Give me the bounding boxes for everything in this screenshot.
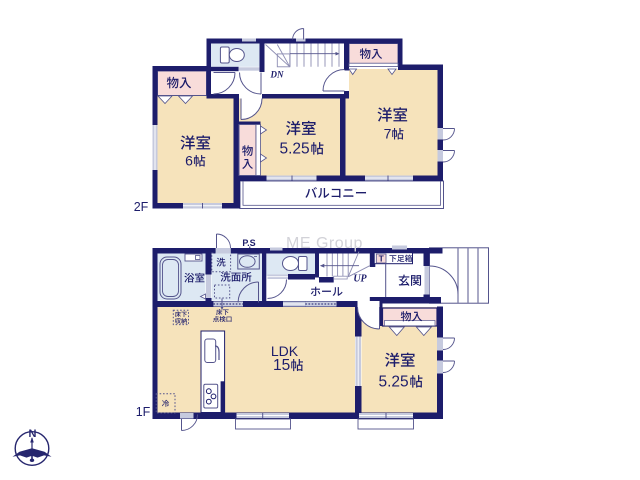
svg-text:DN: DN [270,69,284,79]
svg-text:1F: 1F [136,405,151,419]
svg-text:6: 6 [185,153,193,169]
svg-text:15: 15 [273,357,290,374]
svg-text:T: T [379,253,385,263]
svg-text:5.25: 5.25 [280,141,310,158]
svg-text:UP: UP [353,274,367,285]
svg-text:2F: 2F [134,200,149,214]
svg-text:5.25: 5.25 [379,374,409,391]
svg-text:ME Group: ME Group [286,235,363,252]
svg-text:P.S: P.S [242,238,255,248]
svg-text:7: 7 [384,126,392,142]
